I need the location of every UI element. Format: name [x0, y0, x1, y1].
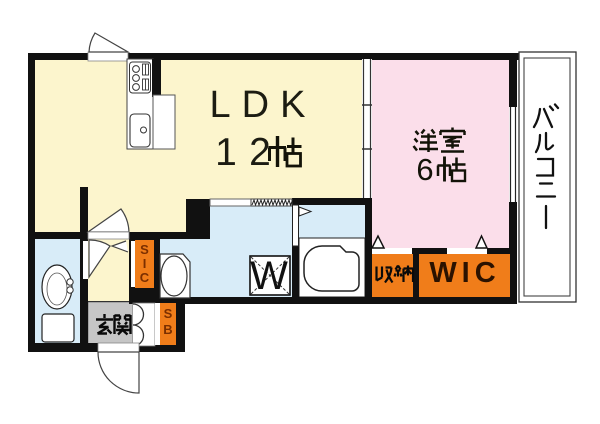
svg-text:1: 1 [215, 131, 237, 174]
svg-text:S: S [140, 242, 149, 257]
svg-text:2: 2 [249, 131, 271, 174]
svg-text:LDK: LDK [210, 84, 317, 126]
svg-text:6: 6 [416, 152, 433, 187]
svg-text:I: I [143, 256, 147, 271]
svg-text:C: C [140, 270, 150, 285]
svg-text:S: S [164, 306, 173, 321]
svg-text:WIC: WIC [429, 257, 500, 289]
svg-text:W: W [250, 254, 288, 298]
svg-text:B: B [163, 322, 172, 337]
